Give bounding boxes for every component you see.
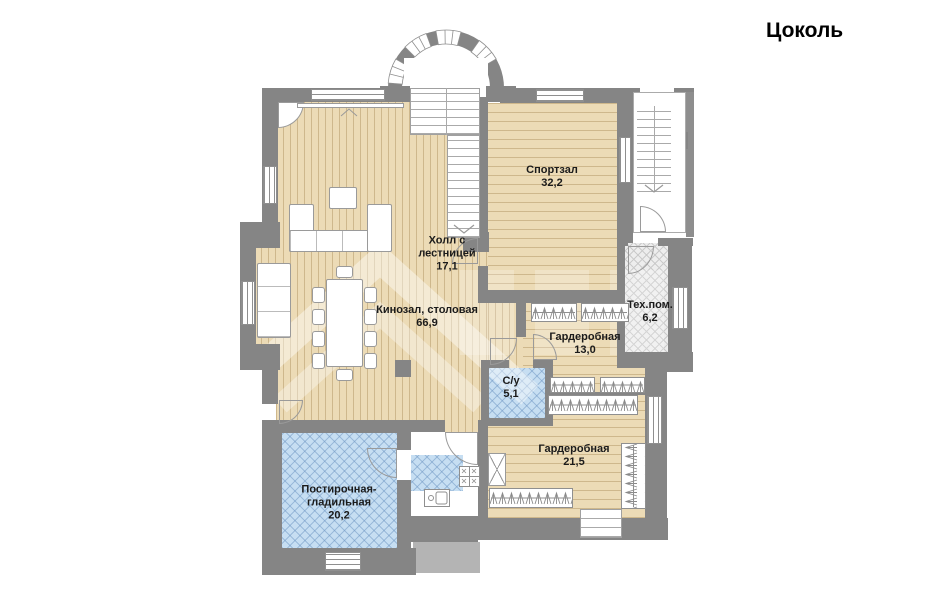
wall-segment bbox=[262, 428, 282, 550]
room-name: Спортзал bbox=[526, 164, 578, 177]
wall-segment bbox=[262, 368, 278, 404]
stairs-divider bbox=[654, 106, 655, 192]
wall-segment bbox=[240, 222, 280, 248]
room-label-laundry: Постирочная-гладильная 20,2 bbox=[290, 484, 388, 523]
floor-plan-page: Цоколь Спортзал 32,2 Холл с лестницей 17… bbox=[0, 0, 926, 606]
sink-icon bbox=[424, 489, 450, 507]
wall-segment bbox=[240, 344, 280, 370]
chair bbox=[364, 309, 377, 325]
room-name: Тех.пом. bbox=[627, 299, 673, 312]
room-name: Постирочная-гладильная bbox=[290, 484, 388, 510]
room-area: 13,0 bbox=[549, 344, 620, 357]
room-area: 32,2 bbox=[526, 177, 578, 190]
room-label-bathroom: С/у 5,1 bbox=[502, 375, 519, 401]
closet-hangers bbox=[581, 303, 629, 322]
closet-hangers bbox=[600, 377, 645, 393]
wall-segment bbox=[481, 418, 553, 426]
stairs-down-arrow bbox=[452, 224, 476, 235]
chair bbox=[364, 287, 377, 303]
room-area: 6,2 bbox=[627, 312, 673, 325]
closet-hangers bbox=[489, 488, 573, 508]
room-name: Гардеробная bbox=[549, 331, 620, 344]
wall-segment bbox=[397, 420, 445, 432]
chair bbox=[312, 353, 325, 369]
window bbox=[536, 89, 584, 102]
sofa-bay bbox=[257, 263, 291, 338]
window bbox=[311, 89, 385, 101]
room-name: С/у bbox=[502, 375, 519, 388]
exterior-step-block bbox=[413, 542, 480, 573]
chair bbox=[312, 331, 325, 347]
room-area: 5,1 bbox=[502, 388, 519, 401]
wall-segment bbox=[516, 297, 526, 337]
wall-segment bbox=[617, 352, 693, 368]
floor-kitchenette bbox=[411, 455, 463, 491]
wall-segment bbox=[478, 518, 668, 540]
window bbox=[672, 287, 688, 329]
room-label-wardrobe13: Гардеробная 13,0 bbox=[549, 331, 620, 357]
wall-segment bbox=[411, 516, 478, 542]
wall-segment bbox=[686, 92, 694, 237]
window bbox=[263, 166, 277, 204]
chair bbox=[364, 353, 377, 369]
room-label-cinema: Кинозал, столовая 66,9 bbox=[376, 304, 478, 330]
window bbox=[325, 552, 361, 571]
stairs-main-flight bbox=[447, 135, 480, 238]
chair bbox=[312, 287, 325, 303]
dining-table bbox=[326, 279, 363, 367]
wall-segment bbox=[397, 480, 411, 548]
room-label-gym: Спортзал 32,2 bbox=[526, 164, 578, 190]
wall-segment bbox=[658, 238, 693, 246]
window bbox=[647, 396, 662, 444]
room-label-wardrobe21: Гардеробная 21,5 bbox=[538, 443, 609, 469]
room-area: 66,9 bbox=[376, 317, 478, 330]
stairs-main-upper bbox=[410, 88, 480, 135]
closet-hangers bbox=[531, 303, 577, 322]
window bbox=[619, 137, 631, 183]
room-area: 20,2 bbox=[290, 509, 388, 522]
room-name: Холл с лестницей bbox=[413, 235, 481, 261]
chair bbox=[312, 309, 325, 325]
screen-marker-icon bbox=[340, 108, 358, 117]
closet-hangers bbox=[550, 377, 595, 393]
bay-landing bbox=[404, 58, 488, 89]
chair bbox=[336, 369, 353, 381]
closet-hangers bbox=[621, 443, 646, 509]
room-area: 17,1 bbox=[413, 260, 481, 273]
coffee-table bbox=[329, 187, 357, 209]
room-area: 21,5 bbox=[538, 456, 609, 469]
closet-hangers bbox=[548, 395, 638, 415]
stairs-divider bbox=[446, 88, 447, 135]
room-name: Гардеробная bbox=[538, 443, 609, 456]
room-label-hall: Холл с лестницей 17,1 bbox=[413, 235, 481, 274]
room-label-techroom: Тех.пом. 6,2 bbox=[627, 299, 673, 325]
window bbox=[241, 281, 255, 325]
wall-segment bbox=[397, 432, 411, 450]
wall-segment bbox=[481, 360, 489, 426]
wall-segment bbox=[478, 290, 625, 303]
page-title: Цоколь bbox=[766, 19, 843, 43]
room-name: Кинозал, столовая bbox=[376, 304, 478, 317]
sofa-arm bbox=[367, 204, 392, 252]
shaft-icon bbox=[488, 453, 506, 486]
stove-icon bbox=[459, 466, 480, 487]
wall-segment bbox=[262, 88, 278, 228]
stairs-down-arrow bbox=[643, 184, 665, 194]
stairs-exit bbox=[580, 509, 622, 538]
chair bbox=[364, 331, 377, 347]
column-pier bbox=[395, 360, 411, 377]
chair bbox=[336, 266, 353, 278]
